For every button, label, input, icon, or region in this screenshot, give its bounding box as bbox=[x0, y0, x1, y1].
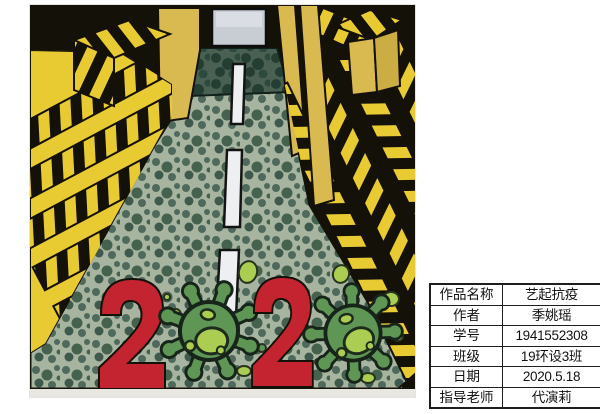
table-cell-label: 日期 bbox=[430, 367, 503, 388]
table-row-class: 班级 19环设3班 bbox=[430, 346, 600, 367]
table-cell-value: 艺起抗疫 bbox=[503, 284, 600, 305]
table-cell-value: 1941552308 bbox=[503, 326, 600, 347]
table-cell-value: 19环设3班 bbox=[503, 346, 600, 367]
table-row-advisor: 指导老师 代演莉 bbox=[430, 387, 600, 408]
table-cell-value: 2020.5.18 bbox=[503, 367, 600, 388]
right-box-front bbox=[348, 38, 377, 95]
table-row-date: 日期 2020.5.18 bbox=[430, 367, 600, 388]
table-cell-value: 代演莉 bbox=[503, 387, 600, 408]
table-row-title: 作品名称 艺起抗疫 bbox=[430, 284, 600, 305]
table-cell-label: 作者 bbox=[430, 305, 503, 326]
right-box-side bbox=[374, 30, 400, 92]
artwork-info-table: 作品名称 艺起抗疫 作者 季姚瑶 学号 1941552308 班级 19环设3班… bbox=[429, 283, 600, 409]
painting-artwork bbox=[30, 5, 415, 397]
table-cell-label: 班级 bbox=[430, 346, 503, 367]
table-cell-value: 季姚瑶 bbox=[503, 305, 600, 326]
table-cell-label: 指导老师 bbox=[430, 387, 503, 408]
table-row-student-id: 学号 1941552308 bbox=[430, 326, 600, 347]
canvas-bottom-margin bbox=[30, 389, 415, 397]
table-row-author: 作者 季姚瑶 bbox=[430, 305, 600, 326]
table-cell-label: 作品名称 bbox=[430, 284, 503, 305]
table-cell-label: 学号 bbox=[430, 326, 503, 347]
page: 2020 作品名称 艺起抗疫 作者 季姚瑶 学号 1941552308 班级 1… bbox=[0, 0, 600, 414]
